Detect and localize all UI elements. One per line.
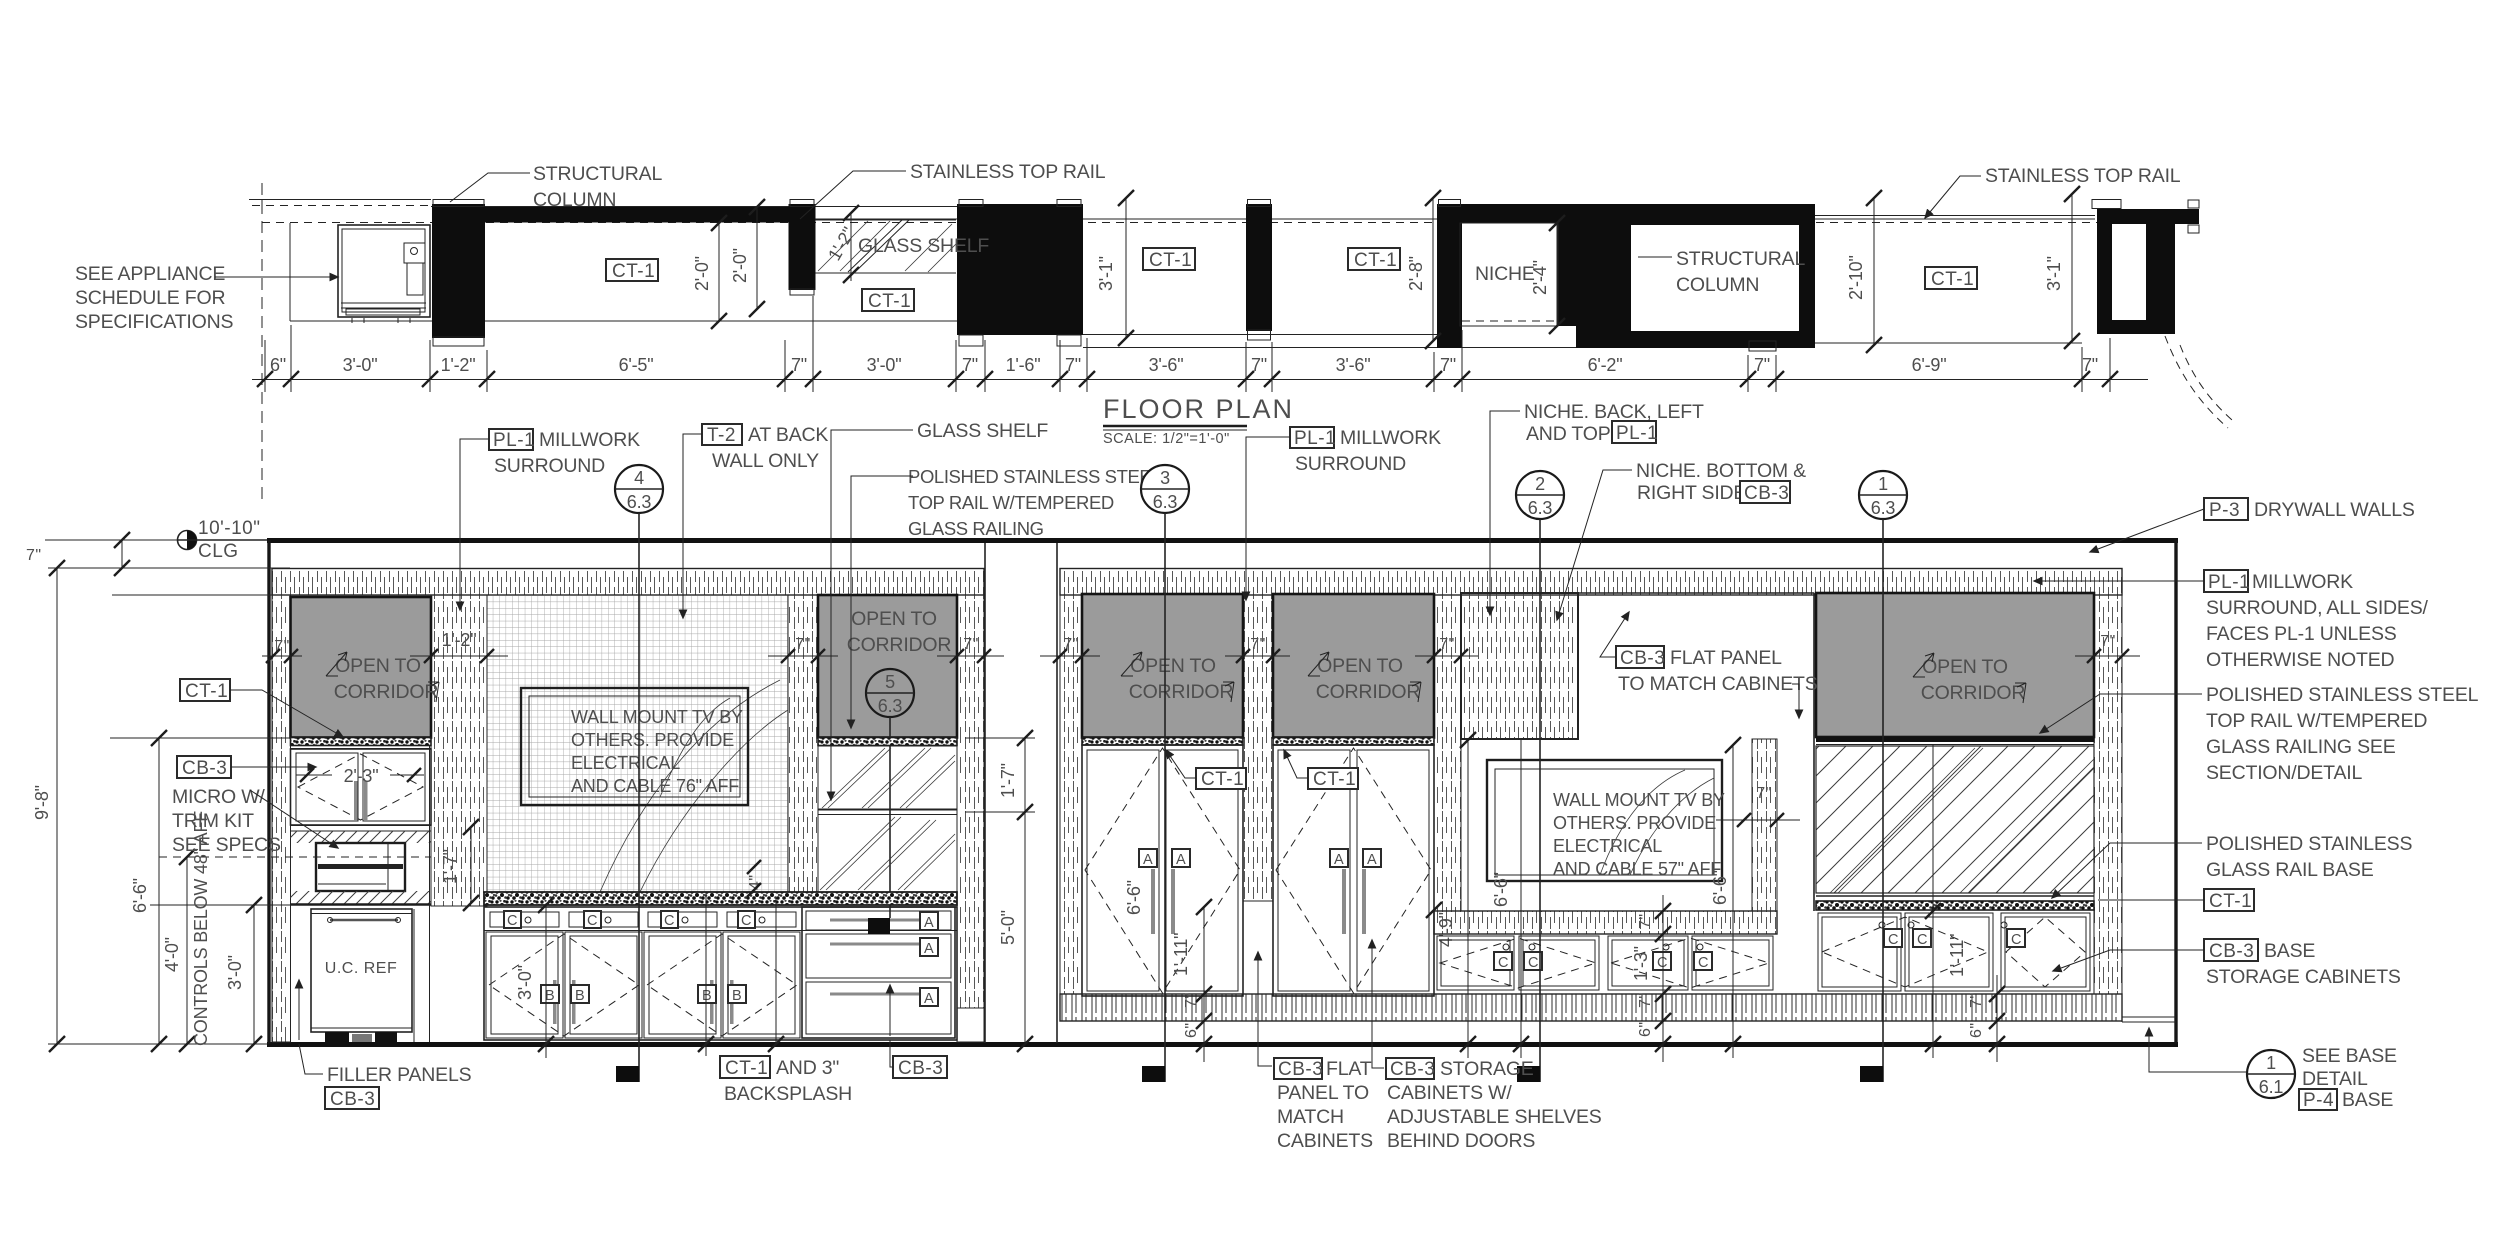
svg-text:TRIM KIT: TRIM KIT [172,810,254,832]
svg-text:3'-0": 3'-0" [867,355,902,375]
svg-text:GLASS RAILING SEE: GLASS RAILING SEE [2206,736,2396,758]
svg-text:COLUMN: COLUMN [533,189,616,211]
svg-text:MILLWORK: MILLWORK [2252,571,2353,593]
svg-text:7": 7" [963,636,979,653]
svg-text:6": 6" [1183,1022,1200,1038]
svg-text:STAINLESS TOP RAIL: STAINLESS TOP RAIL [910,161,1106,183]
svg-text:DETAIL: DETAIL [2302,1068,2368,1090]
svg-text:7": 7" [1251,355,1267,375]
svg-text:1'-2": 1'-2" [442,630,477,650]
svg-text:FLAT: FLAT [1326,1058,1372,1080]
svg-text:7": 7" [1065,355,1081,375]
svg-text:SCALE: 1/2"=1'-0": SCALE: 1/2"=1'-0" [1103,431,1230,447]
svg-text:FLOOR PLAN: FLOOR PLAN [1103,394,1294,424]
svg-text:BASE: BASE [2264,940,2315,962]
svg-text:1'-6": 1'-6" [1006,355,1041,375]
svg-text:6'-6": 6'-6" [1710,870,1730,905]
svg-text:FACES PL-1 UNLESS: FACES PL-1 UNLESS [2206,623,2397,645]
svg-text:C: C [1698,955,1709,971]
svg-text:P-4: P-4 [2303,1090,2334,1111]
svg-text:10'-10": 10'-10" [198,518,260,539]
svg-text:2'-0": 2'-0" [692,256,712,291]
svg-text:6.3: 6.3 [1153,492,1178,512]
svg-text:GLASS SHELF: GLASS SHELF [917,420,1048,442]
svg-text:C: C [664,913,675,929]
svg-text:CB-3: CB-3 [1620,648,1665,669]
svg-text:P-3: P-3 [2209,500,2240,521]
svg-text:3'-1": 3'-1" [1096,256,1116,291]
svg-text:7": 7" [1754,355,1770,375]
svg-text:SURROUND: SURROUND [1295,453,1406,475]
svg-text:MATCH: MATCH [1277,1106,1344,1128]
svg-text:5'-0": 5'-0" [998,910,1018,945]
svg-text:7": 7" [1440,355,1456,375]
svg-text:AND CABLE 76" AFF: AND CABLE 76" AFF [571,776,739,796]
svg-text:SEE SPECS: SEE SPECS [172,834,281,856]
svg-text:WALL MOUNT TV BY: WALL MOUNT TV BY [1553,790,1725,810]
svg-text:3'-0": 3'-0" [343,355,378,375]
svg-text:BACKSPLASH: BACKSPLASH [724,1083,852,1105]
svg-text:CT-1: CT-1 [1931,269,1974,290]
svg-text:CORRIDOR: CORRIDOR [334,681,439,703]
svg-text:6.1: 6.1 [2259,1077,2284,1097]
svg-text:MICRO W/: MICRO W/ [172,786,265,808]
svg-text:3'-6": 3'-6" [1149,355,1184,375]
svg-text:2'-10": 2'-10" [1846,255,1866,300]
svg-text:2'-3": 2'-3" [344,766,379,786]
svg-text:OPEN TO: OPEN TO [1922,656,2008,678]
svg-text:B: B [575,988,585,1004]
svg-text:SECTION/DETAIL: SECTION/DETAIL [2206,762,2362,784]
svg-text:4'-0": 4'-0" [162,937,182,972]
svg-text:3'-0": 3'-0" [515,965,535,1000]
svg-text:7": 7" [795,636,811,653]
svg-text:6": 6" [270,355,286,375]
svg-text:A: A [1334,852,1344,868]
svg-text:PL-1: PL-1 [1294,428,1336,449]
svg-text:4'-9": 4'-9" [1436,912,1456,947]
svg-text:A: A [1143,852,1153,868]
svg-text:FILLER PANELS: FILLER PANELS [327,1064,472,1086]
svg-text:GLASS SHELF: GLASS SHELF [858,235,989,257]
svg-text:CT-1: CT-1 [1354,250,1397,271]
svg-text:SURROUND: SURROUND [494,455,605,477]
svg-text:POLISHED STAINLESS STEEL: POLISHED STAINLESS STEEL [2206,684,2479,706]
svg-text:7": 7" [1637,992,1654,1008]
svg-text:CT-1: CT-1 [1313,769,1356,790]
svg-text:STORAGE: STORAGE [1440,1058,1534,1080]
svg-text:DRYWALL WALLS: DRYWALL WALLS [2254,499,2415,521]
svg-text:CT-1: CT-1 [1149,250,1192,271]
svg-text:1'-3": 1'-3" [1631,946,1651,981]
svg-text:C: C [1657,955,1668,971]
svg-text:7": 7" [962,355,978,375]
svg-text:ADJUSTABLE SHELVES: ADJUSTABLE SHELVES [1387,1106,1602,1128]
svg-text:1'-7": 1'-7" [998,763,1018,798]
svg-text:1'-11": 1'-11" [1171,933,1191,976]
svg-text:6": 6" [1637,1021,1654,1037]
svg-text:CT-1: CT-1 [612,261,655,282]
svg-text:WALL ONLY: WALL ONLY [712,450,819,472]
svg-text:1'-11": 1'-11" [1947,934,1967,977]
svg-text:7": 7" [26,547,42,564]
svg-text:CLG: CLG [198,541,239,562]
svg-text:C: C [1888,932,1899,948]
svg-text:7": 7" [2082,355,2098,375]
svg-text:SEE APPLIANCE: SEE APPLIANCE [75,263,225,285]
svg-text:PL-1: PL-1 [1616,423,1658,444]
svg-text:TOP RAIL W/TEMPERED: TOP RAIL W/TEMPERED [2206,710,2427,732]
svg-text:CT-1: CT-1 [1201,769,1244,790]
svg-text:OPEN TO: OPEN TO [851,608,937,630]
svg-text:6.3: 6.3 [627,492,652,512]
svg-text:3'-6": 3'-6" [1336,355,1371,375]
svg-text:STORAGE CABINETS: STORAGE CABINETS [2206,966,2401,988]
svg-text:7": 7" [1756,785,1772,802]
svg-text:6.3: 6.3 [1871,498,1896,518]
svg-text:CABINETS: CABINETS [1277,1130,1373,1152]
svg-text:OPEN TO: OPEN TO [1130,655,1216,677]
svg-text:OPEN TO: OPEN TO [335,655,421,677]
svg-text:CB-3: CB-3 [898,1058,943,1079]
svg-text:NICHE. BOTTOM &: NICHE. BOTTOM & [1636,460,1806,482]
svg-text:GLASS RAIL BASE: GLASS RAIL BASE [2206,859,2374,881]
svg-text:CORRIDOR: CORRIDOR [1921,682,2026,704]
svg-text:NICHE. BACK, LEFT: NICHE. BACK, LEFT [1524,401,1704,423]
svg-text:C: C [507,913,518,929]
svg-text:2: 2 [1535,474,1545,494]
svg-text:1: 1 [2266,1053,2276,1073]
svg-text:6'-6": 6'-6" [130,878,150,913]
svg-text:6'-9": 6'-9" [1912,355,1947,375]
svg-text:C: C [2011,932,2022,948]
svg-text:OTHERS. PROVIDE: OTHERS. PROVIDE [571,730,734,750]
svg-text:CORRIDOR: CORRIDOR [847,634,952,656]
svg-text:A: A [1367,852,1377,868]
svg-text:OTHERWISE NOTED: OTHERWISE NOTED [2206,649,2395,671]
svg-text:CB-3: CB-3 [182,758,227,779]
svg-text:STAINLESS TOP RAIL: STAINLESS TOP RAIL [1985,165,2181,187]
svg-text:6.3: 6.3 [1528,498,1553,518]
svg-text:CORRIDOR: CORRIDOR [1129,681,1234,703]
svg-text:CT-1: CT-1 [868,291,911,312]
svg-text:SPECIFICATIONS: SPECIFICATIONS [75,311,233,333]
svg-text:PL-1: PL-1 [493,430,535,451]
svg-text:CORRIDOR: CORRIDOR [1316,681,1421,703]
svg-text:ELECTRICAL: ELECTRICAL [1553,836,1662,856]
svg-text:CT-1: CT-1 [185,681,228,702]
svg-text:6'-5": 6'-5" [619,355,654,375]
svg-text:7": 7" [1250,636,1266,653]
svg-text:AT BACK: AT BACK [748,424,828,446]
svg-text:7": 7" [1637,913,1654,929]
svg-text:1'-2": 1'-2" [441,355,476,375]
svg-text:MILLWORK: MILLWORK [539,429,640,451]
svg-text:T-2: T-2 [707,425,736,446]
svg-text:NICHE: NICHE [1475,263,1535,285]
svg-text:RIGHT SIDE: RIGHT SIDE [1637,482,1746,504]
svg-text:U.C. REF: U.C. REF [325,960,397,977]
svg-text:7": 7" [2100,633,2116,650]
svg-text:C: C [1917,932,1928,948]
svg-text:C: C [1528,955,1539,971]
svg-text:6.3: 6.3 [878,696,903,716]
svg-text:C: C [741,913,752,929]
svg-text:COLUMN: COLUMN [1676,274,1759,296]
svg-text:BEHIND DOORS: BEHIND DOORS [1387,1130,1535,1152]
svg-text:FLAT PANEL: FLAT PANEL [1670,647,1782,669]
svg-text:5: 5 [885,672,895,692]
svg-text:CT-1: CT-1 [2209,891,2252,912]
svg-text:2'-4": 2'-4" [1530,260,1550,295]
svg-text:CB-3: CB-3 [330,1089,375,1110]
svg-text:2'-8": 2'-8" [1406,256,1426,291]
svg-text:POLISHED STAINLESS: POLISHED STAINLESS [2206,833,2412,855]
svg-text:TO MATCH CABINETS: TO MATCH CABINETS [1618,673,1818,695]
svg-text:B: B [702,988,712,1004]
svg-text:TOP RAIL W/TEMPERED: TOP RAIL W/TEMPERED [908,492,1114,513]
svg-text:BASE: BASE [2342,1089,2393,1111]
svg-text:6'-6": 6'-6" [1491,872,1511,907]
svg-text:C: C [587,913,598,929]
svg-text:GLASS RAILING: GLASS RAILING [908,518,1044,539]
svg-text:7": 7" [791,355,807,375]
svg-text:CT-1: CT-1 [725,1058,768,1079]
svg-text:MILLWORK: MILLWORK [1340,427,1441,449]
svg-text:WALL MOUNT TV BY: WALL MOUNT TV BY [571,707,743,727]
svg-text:9'-8": 9'-8" [32,785,52,820]
svg-text:A: A [924,915,934,931]
svg-text:CB-3: CB-3 [1744,483,1789,504]
svg-text:PANEL TO: PANEL TO [1277,1082,1369,1104]
svg-text:A: A [924,941,934,957]
svg-text:CB-3: CB-3 [1278,1059,1323,1080]
svg-text:AND 3": AND 3" [776,1057,839,1079]
svg-text:1'-7": 1'-7" [440,849,460,884]
svg-text:OPEN TO: OPEN TO [1317,655,1403,677]
svg-text:A: A [924,991,934,1007]
svg-text:STRUCTURAL: STRUCTURAL [1676,248,1805,270]
svg-text:SEE BASE: SEE BASE [2302,1045,2397,1067]
svg-text:AND TOP: AND TOP [1526,423,1611,445]
svg-text:7": 7" [1968,992,1985,1008]
svg-text:OTHERS. PROVIDE: OTHERS. PROVIDE [1553,813,1716,833]
svg-text:1: 1 [1878,474,1888,494]
svg-text:3'-0": 3'-0" [225,955,245,990]
svg-text:3: 3 [1160,468,1170,488]
svg-text:SCHEDULE FOR: SCHEDULE FOR [75,287,225,309]
svg-text:7": 7" [1439,636,1455,653]
svg-text:CB-3: CB-3 [1390,1059,1435,1080]
svg-text:POLISHED STAINLESS STEEL: POLISHED STAINLESS STEEL [908,466,1161,487]
svg-text:SURROUND, ALL SIDES/: SURROUND, ALL SIDES/ [2206,597,2429,619]
svg-text:CB-3: CB-3 [2209,941,2254,962]
svg-text:6": 6" [1968,1022,1985,1038]
svg-text:STRUCTURAL: STRUCTURAL [533,163,662,185]
svg-text:CABINETS W/: CABINETS W/ [1387,1082,1512,1104]
svg-text:2'-0": 2'-0" [730,248,750,283]
svg-text:6'-2": 6'-2" [1588,355,1623,375]
svg-text:A: A [1176,852,1186,868]
svg-text:6'-6": 6'-6" [1124,880,1144,915]
svg-text:B: B [545,988,555,1004]
svg-text:ELECTRICAL: ELECTRICAL [571,753,680,773]
svg-text:3'-1": 3'-1" [2044,256,2064,291]
svg-text:C: C [1498,955,1509,971]
svg-text:PL-1: PL-1 [2208,572,2250,593]
svg-text:4: 4 [634,468,644,488]
svg-text:AND CABLE 57" AFF: AND CABLE 57" AFF [1553,859,1721,879]
svg-text:B: B [732,988,742,1004]
